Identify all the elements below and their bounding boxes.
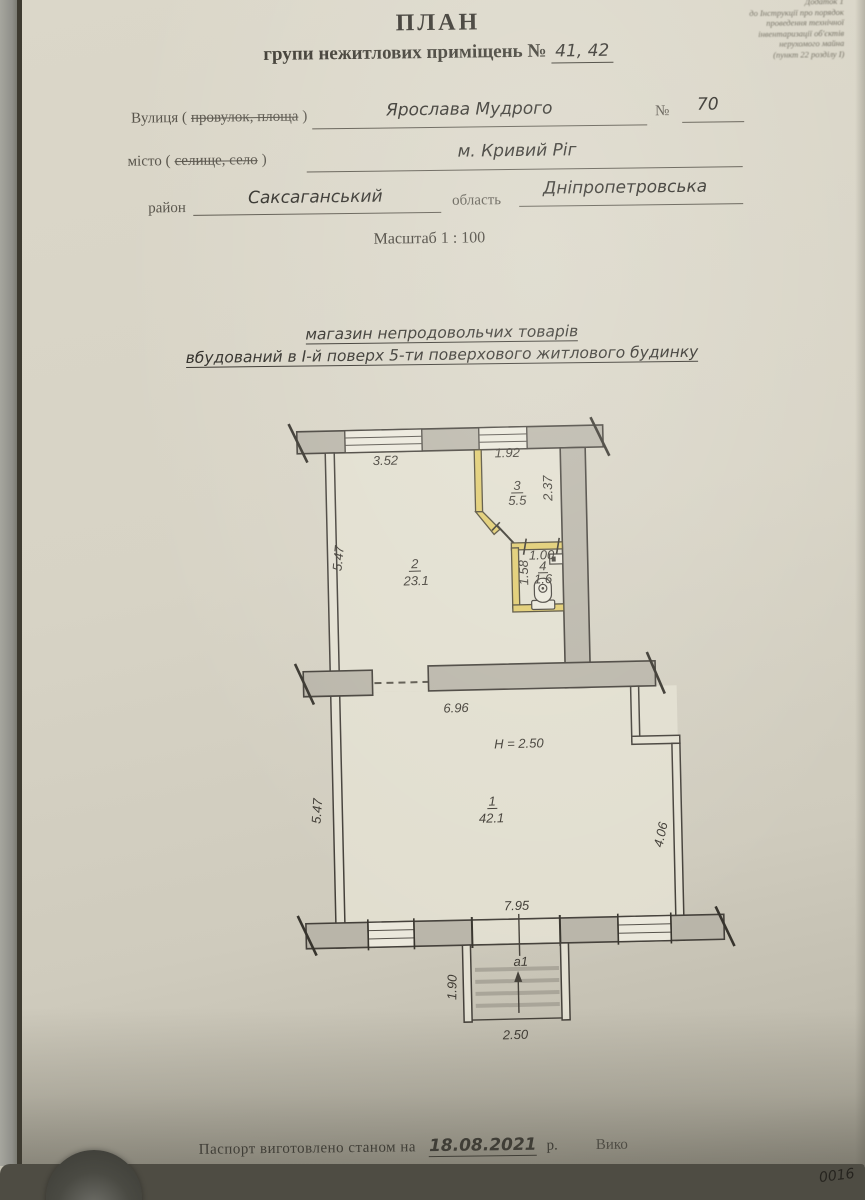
subject-line1: магазин непродовольчих товарів (305, 322, 578, 344)
partition-room2-room3 (474, 450, 482, 512)
window-bottom-left (368, 921, 415, 947)
middle-wall (428, 661, 656, 691)
dimension-leader-line (519, 914, 520, 956)
district-underline (193, 212, 441, 216)
city-label: місто ( селище, село ) (128, 151, 267, 171)
right-wall-jog-vertical (631, 686, 640, 741)
passport-text: Паспорт виготовлено станом на (199, 1139, 417, 1158)
door-jamb (560, 915, 561, 946)
entrance-door-opening (472, 919, 561, 944)
city-value: м. Кривий Ріг (457, 140, 576, 161)
street-label-struck: провулок, площа (191, 109, 299, 126)
up-arrow-head (514, 971, 522, 982)
room-interior-lower (335, 685, 682, 933)
wall-section-tick (414, 918, 415, 949)
window-top-left (345, 429, 422, 453)
stair-step (476, 1004, 560, 1006)
document-subtitle: групи нежитлових приміщень № 41, 42 (0, 36, 865, 69)
premises-numbers: 41, 42 (551, 41, 613, 64)
room2-number: 2 (410, 556, 419, 571)
room1-area: 42.1 (479, 810, 505, 826)
house-number-label: № (655, 103, 670, 120)
stair-label: а1 (513, 954, 528, 969)
passport-suffix: р. (546, 1138, 557, 1154)
city-label-text: місто ( (128, 153, 171, 170)
scanned-floor-plan-document: Додаток 1 до Інструкції про порядок пров… (0, 0, 865, 1200)
document-content: Додаток 1 до Інструкції про порядок пров… (0, 0, 865, 1200)
room4-area: 1.6 (534, 571, 553, 586)
room3-area: 5.5 (508, 493, 527, 508)
scale-note: Масштаб 1 : 100 (373, 229, 485, 248)
region-value: Дніпропетровська (543, 177, 707, 199)
wall-section-tick (368, 919, 369, 950)
stair-step (476, 992, 560, 994)
room2-area: 23.1 (402, 573, 429, 589)
dim-stair-depth: 1.90 (444, 974, 459, 1000)
street-value: Ярослава Мудрого (386, 98, 553, 120)
executor-label-partial: Вико (596, 1137, 628, 1153)
street-underline (312, 124, 647, 129)
building-description: магазин непродовольчих товарів вбудовани… (0, 316, 865, 371)
floor-plan-drawing: 3.52 1.92 3 5.5 2.37 5.47 2 23.1 1.00 4 … (264, 389, 759, 1080)
page-edge-strip (0, 0, 17, 1166)
dim-room3-height: 2.37 (540, 475, 556, 502)
passport-date-line: Паспорт виготовлено станом на 18.08.2021… (199, 1134, 628, 1159)
city-label-close: ) (262, 152, 267, 168)
dim-stair-width: 2.50 (502, 1027, 529, 1043)
city-underline (307, 166, 743, 173)
stair-right-rail (560, 943, 570, 1020)
dim-bottom: 7.95 (504, 898, 530, 914)
wall-section-tick (671, 912, 672, 943)
page-right-shade (855, 0, 865, 1200)
stair-bottom-edge (472, 1018, 562, 1020)
ceiling-height-note: H = 2.50 (494, 735, 545, 751)
street-label: Вулиця ( провулок, площа ) (131, 107, 307, 127)
room1-number: 1 (488, 793, 496, 808)
room3-number: 3 (513, 478, 521, 493)
region-label: область (452, 192, 501, 210)
passport-date: 18.08.2021 (429, 1135, 537, 1157)
dim-room4-depth: 1.58 (516, 559, 532, 585)
house-number-value: 70 (697, 94, 719, 114)
door-jamb (472, 917, 473, 948)
subtitle-text: групи нежитлових приміщень № (263, 41, 546, 65)
stair-left-rail (462, 945, 472, 1022)
right-upper-wall (560, 447, 590, 688)
number-underline (682, 121, 744, 123)
page-edge-line (17, 0, 22, 1166)
middle-wall-stub (303, 670, 373, 697)
district-value: Саксаганський (248, 187, 383, 209)
region-underline (519, 203, 743, 207)
subject-line2: вбудований в І-й поверх 5-ти поверхового… (186, 343, 699, 368)
city-label-struck: селище, село (174, 152, 257, 169)
up-arrow-icon (518, 979, 519, 1013)
dim-top-left-window: 3.52 (373, 453, 399, 469)
dim-mid-wall: 6.96 (443, 700, 469, 716)
district-label: район (148, 200, 186, 217)
dim-top-right-window: 1.92 (494, 445, 520, 461)
street-label-text: Вулиця ( (131, 110, 187, 127)
wall-section-tick (618, 914, 619, 945)
street-label-close: ) (302, 108, 307, 124)
dim-left-upper: 5.47 (329, 544, 347, 571)
dim-left-lower: 5.47 (309, 797, 326, 824)
window-bottom-right (618, 915, 672, 941)
